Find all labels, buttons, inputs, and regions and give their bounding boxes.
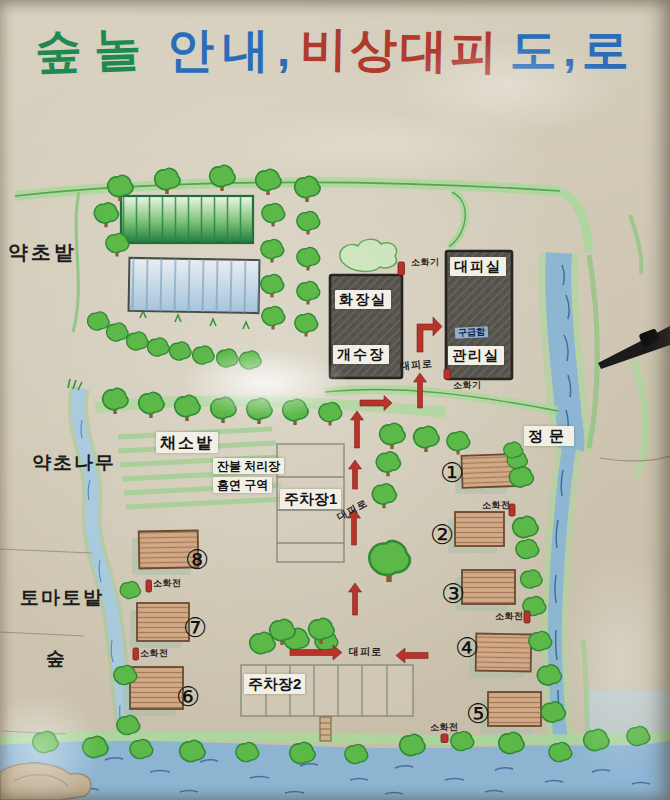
cabin-number-3: ③ xyxy=(441,578,465,610)
title-guide: 안내, xyxy=(167,24,298,76)
fire-extinguisher-marker xyxy=(398,262,405,275)
label-fire-hydrant: 소화전 xyxy=(430,722,459,733)
fire-hydrant-marker xyxy=(146,580,152,592)
arrow-left xyxy=(396,648,428,663)
cloud-bush xyxy=(340,239,397,271)
cabin-number-1: ① xyxy=(440,457,464,489)
label-dish-washing: 개수장 xyxy=(333,345,389,364)
label-parking-lot-2: 주차장2 xyxy=(244,674,305,694)
fire-hydrant-marker xyxy=(441,734,448,743)
label-fire-hydrant: 소화전 xyxy=(495,611,524,622)
cabin-2 xyxy=(448,512,504,553)
arrow-up-right xyxy=(417,317,442,352)
label-shelter-room: 대피실 xyxy=(450,257,506,276)
label-vegetable-field: 채소밭 xyxy=(156,432,218,453)
greenhouse-green xyxy=(121,196,253,243)
label-evacuation-route: 대피로 xyxy=(349,646,382,658)
cabin-number-2: ② xyxy=(430,519,454,551)
label-fire-hydrant: 소화전 xyxy=(153,578,182,589)
label-fire-extinguisher: 소화기 xyxy=(453,380,482,391)
cabin-number-8: ⑧ xyxy=(185,544,209,576)
label-first-aid-kit: 구급함 xyxy=(455,326,489,339)
fire-hydrant-marker xyxy=(524,611,530,623)
title-emergency-evac: 비상대피 xyxy=(300,22,501,77)
label-ember-disposal: 잔불 처리장 xyxy=(213,458,284,474)
cabin-number-4: ④ xyxy=(455,632,479,664)
map-board: 숲놀안내,비상대피도,로 약초밭 약초나무 토마토밭 숲 채소밭 정문 화장실 … xyxy=(0,0,670,800)
title-forest-play: 숲놀 xyxy=(34,22,154,78)
fire-extinguisher-marker xyxy=(444,369,451,379)
fire-hydrant-marker xyxy=(133,648,139,660)
label-parking-lot-1: 주차장1 xyxy=(280,489,341,509)
map-drawing xyxy=(0,0,670,800)
label-herb-field: 약초밭 xyxy=(8,240,77,264)
label-main-gate: 정문 xyxy=(524,426,574,446)
label-smoking-zone: 흡연 구역 xyxy=(213,477,272,493)
river-steps xyxy=(320,717,331,741)
label-forest: 숲 xyxy=(46,648,65,671)
label-herb-trees: 약초나무 xyxy=(32,452,116,475)
label-fire-hydrant: 소화전 xyxy=(140,648,169,659)
label-fire-hydrant: 소화전 xyxy=(482,500,511,511)
arrow-up xyxy=(349,583,362,615)
arrow-up xyxy=(351,411,364,448)
label-tomato-field: 토마토밭 xyxy=(20,587,104,610)
cabin-number-5: ⑤ xyxy=(466,698,490,730)
cabin-7 xyxy=(130,603,189,648)
arrow-up xyxy=(349,460,362,489)
label-restroom: 화장실 xyxy=(335,290,391,309)
cabin-number-7: ⑦ xyxy=(183,612,207,644)
label-management-office: 관리실 xyxy=(448,346,504,365)
cabin-number-6: ⑥ xyxy=(176,681,200,713)
label-fire-extinguisher: 소화기 xyxy=(411,257,440,268)
map-title: 숲놀안내,비상대피도,로 xyxy=(0,24,670,76)
greenhouse-blue xyxy=(129,258,260,313)
title-road: 도,로 xyxy=(510,24,635,76)
